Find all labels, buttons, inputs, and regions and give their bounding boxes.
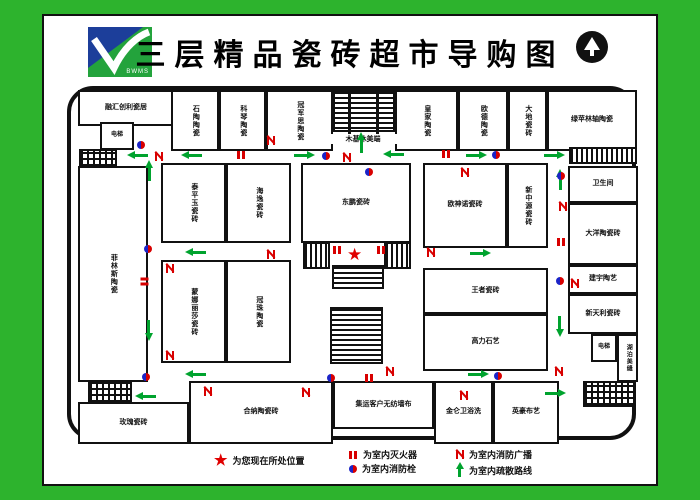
fire-broadcast-icon [267,136,275,145]
room-label: 电梯 [598,344,610,352]
fire-extinguisher-icon [442,150,451,158]
fire-extinguisher-icon [141,278,149,287]
evac-arrow-right-icon [293,151,315,159]
evac-arrow-left-icon [383,150,405,158]
fire-broadcast-icon [559,202,567,211]
evac-arrow-left-icon [135,392,157,400]
room-hupo: 湖泊美缝 [617,334,638,382]
fire-hydrant-icon [322,152,330,160]
guide-map-page: { "header": { "title": "三层精品瓷砖超市导购图", "l… [0,0,700,500]
evac-arrow-down-icon [145,319,153,341]
room-haiyi: 海逸瓷砖 [226,163,291,243]
room-oude: 欧德陶瓷 [458,90,508,151]
fire-extinguisher-icon [349,451,358,459]
star-icon: ★ [214,453,227,468]
room-label: 王者瓷砖 [472,287,500,296]
room-label: 融汇创利瓷居 [105,104,147,113]
fire-extinguisher-icon [333,246,342,254]
legend-text: 为室内消防广播 [469,448,532,461]
fire-broadcast-icon [461,168,469,177]
room-gaolishiyi: 高力石艺 [423,314,548,371]
room-mengnalisha: 蒙娜丽莎瓷砖 [161,260,226,363]
escalator-center-right [384,242,411,269]
room-taipingyu: 泰平玉瓷砖 [161,163,226,243]
evac-arrow-up-icon [145,160,153,182]
room-label: 新中源瓷砖 [523,186,532,226]
legend-text: 为室内灭火器 [363,448,417,461]
floor-plan: 融汇创利瓷居 电梯 石陶陶瓷 科琴陶瓷 冠军思陶瓷 皇家陶瓷 欧德陶瓷 大地瓷砖… [67,86,636,440]
legend-hydrant: 为室内消防栓 [349,462,416,475]
fire-hydrant-icon [556,277,564,285]
fire-hydrant-icon [492,151,500,159]
fire-broadcast-icon [267,250,275,259]
fire-hydrant-icon [137,141,145,149]
fire-broadcast-icon [204,387,212,396]
room-lvpinglinzhou: 绿苹林轴陶瓷 [547,90,637,151]
fire-hydrant-icon [142,373,150,381]
room-ronghui: 融汇创利瓷居 [78,90,174,126]
fire-extinguisher-icon [557,238,566,246]
legend-text: 为室内消防栓 [362,462,416,475]
fire-hydrant-icon [349,465,357,473]
room-label: 泰平玉瓷砖 [189,183,198,223]
page-title: 三层精品瓷砖超市导购图 [44,30,656,74]
room-dadi: 大地瓷砖 [508,90,547,151]
room-label: 卫生间 [593,180,614,189]
room-label: 菲林斯陶瓷 [109,254,118,294]
room-label: 大地瓷砖 [523,105,532,137]
room-label: 湖泊美缝 [624,344,632,372]
escalator-center-left [303,242,330,269]
fire-hydrant-icon [494,372,502,380]
evac-arrow-left-icon [185,248,207,256]
room-restroom: 卫生间 [568,166,638,203]
page-sheet: BWMS 三层精品瓷砖超市导购图 融汇创利瓷居 电梯 石陶陶瓷 科琴陶瓷 冠军思… [42,14,658,486]
compass-stem [590,50,594,56]
stairs-center-main [330,307,383,364]
fire-broadcast-icon [555,367,563,376]
room-label: 冠珠陶瓷 [254,296,263,328]
room-guanjunsi: 冠军思陶瓷 [266,90,333,151]
legend-broadcast: 为室内消防广播 [456,448,532,461]
room-label: 蒙娜丽莎瓷砖 [189,288,198,336]
legend-text: 为室内疏散路线 [469,464,532,477]
fire-hydrant-icon [557,172,565,180]
fire-broadcast-icon [166,351,174,360]
fire-broadcast-icon [166,264,174,273]
room-dongpeng: 东鹏瓷砖 [301,163,411,243]
room-label: 石陶陶瓷 [191,105,200,137]
fire-broadcast-icon [386,367,394,376]
evac-arrow-right-icon [544,389,566,397]
evac-arrow-left-icon [181,151,203,159]
room-keqin: 科琴陶瓷 [219,90,266,151]
room-feilinsi: 菲林斯陶瓷 [78,166,148,382]
room-dayang: 大洋陶瓷砖 [568,203,638,265]
legend-text: 为您现在所处位置 [232,454,304,467]
fire-broadcast-icon [427,248,435,257]
room-label: 大洋陶瓷砖 [586,230,621,239]
you-are-here-star: ★ [347,246,362,263]
room-xinzhongyuan: 新中源瓷砖 [507,163,548,248]
stairs-bottom-right [583,381,635,407]
stairs-center-landing [332,265,384,289]
room-label: 集运客户无纺墙布 [356,401,412,410]
fire-broadcast-icon [302,388,310,397]
fire-hydrant-icon [144,245,152,253]
room-wangzhe: 王者瓷砖 [423,268,548,314]
legend-extinguisher: 为室内灭火器 [349,448,417,461]
room-label: 科琴陶瓷 [238,105,247,137]
evac-arrow-down-icon [556,315,564,337]
compass-arrow [584,37,600,50]
evac-arrow-left-icon [185,370,207,378]
room-xintianli: 新天利瓷砖 [568,294,638,334]
escalator-top-stairs [333,90,395,132]
room-meigui: 玫瑰瓷砖 [78,402,189,444]
room-label: 冠军思陶瓷 [295,101,304,141]
room-label: 合纳陶瓷砖 [244,408,279,417]
room-label: 英豪布艺 [512,408,540,417]
fire-hydrant-icon [327,374,335,382]
room-label: 欧神诺瓷砖 [448,201,483,210]
fire-broadcast-icon [571,279,579,288]
evac-arrow-up-icon [357,132,365,154]
stairs-top-right [569,147,637,164]
room-label: 绿苹林轴陶瓷 [571,116,613,125]
room-label: 海逸瓷砖 [254,187,263,219]
room-label: 欧德陶瓷 [479,105,488,137]
fire-extinguisher-icon [377,246,386,254]
evac-arrow-right-icon [467,370,489,378]
evac-arrow-left-icon [127,151,149,159]
fire-hydrant-icon [365,168,373,176]
room-label: 皇家陶瓷 [422,105,431,137]
room-label: 新天利瓷砖 [586,310,621,319]
fire-extinguisher-icon [237,151,246,159]
evac-arrow-up-icon [456,462,464,478]
evac-arrow-right-icon [469,249,491,257]
evac-arrow-right-icon [465,151,487,159]
room-label: 高力石艺 [472,338,500,347]
fire-broadcast-icon [155,152,163,161]
fire-broadcast-icon [460,391,468,400]
room-label: 建宇陶艺 [589,275,617,284]
room-wallpaper: 集运客户无纺墙布 [333,381,434,429]
room-huangjia: 皇家陶瓷 [395,90,458,151]
room-label: 金仑卫浴洗 [446,408,481,417]
fire-broadcast-icon [343,153,351,162]
room-elevator-b: 电梯 [591,334,617,362]
room-guanzhu: 冠珠陶瓷 [226,260,291,363]
room-label: 玫瑰瓷砖 [120,419,148,428]
room-label: 东鹏瓷砖 [342,199,370,208]
fire-extinguisher-icon [365,374,374,382]
room-shitao: 石陶陶瓷 [171,90,219,151]
legend-you-are-here: ★ 为您现在所处位置 [214,453,304,468]
fire-broadcast-icon [456,450,464,459]
room-label: 电梯 [111,132,123,140]
legend-route: 为室内疏散路线 [456,462,532,478]
north-compass-icon [576,31,608,63]
evac-arrow-right-icon [543,151,565,159]
room-elevator-a: 电梯 [100,122,134,150]
